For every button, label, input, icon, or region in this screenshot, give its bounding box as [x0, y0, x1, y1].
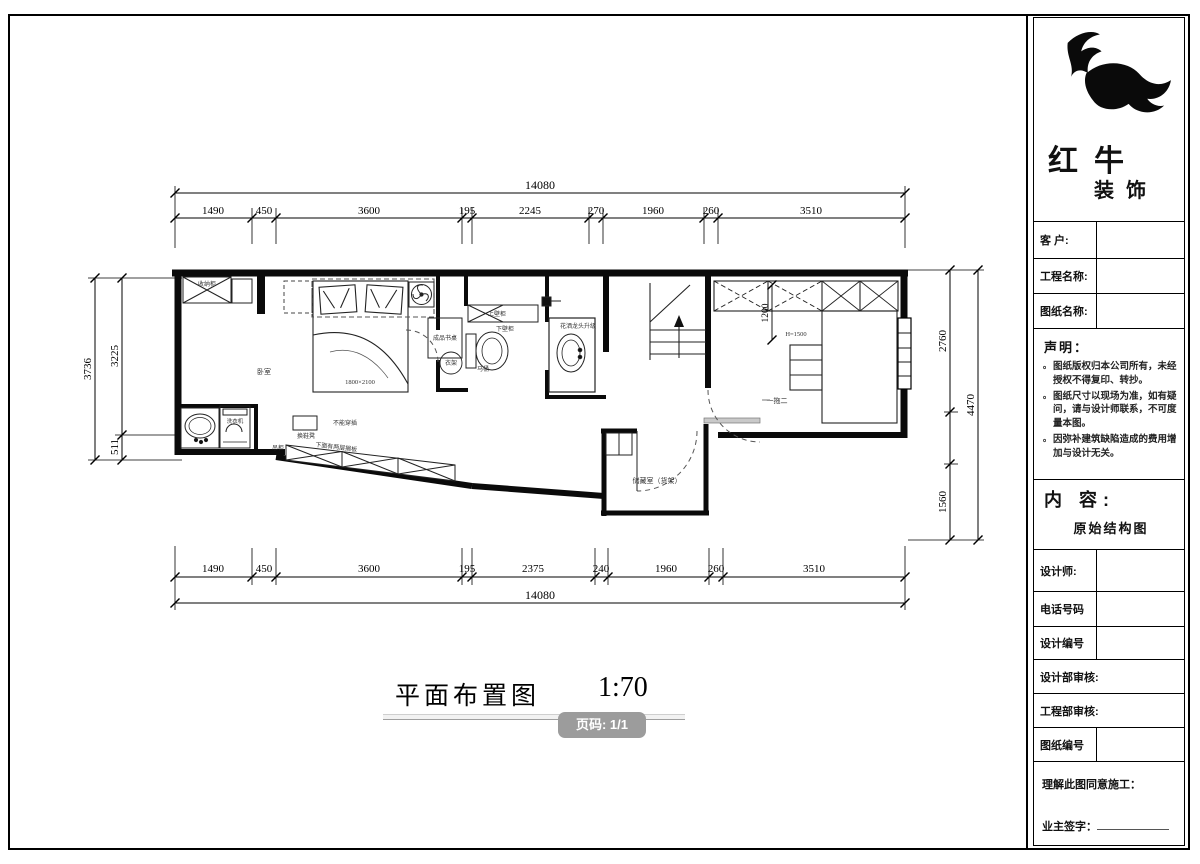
svg-text:511: 511 — [109, 439, 121, 455]
svg-text:260: 260 — [708, 563, 725, 575]
design-dept-review-row: 设计部审核: — [1034, 660, 1184, 694]
band-note-top-label: 不能穿插 — [333, 419, 357, 427]
desk-label: 成品书桌 — [433, 334, 457, 342]
svg-text:3600: 3600 — [358, 563, 381, 575]
cell-divider — [1096, 259, 1097, 293]
top-cabinet-label: 收纳柜 — [198, 280, 216, 288]
svg-text:3510: 3510 — [803, 563, 826, 575]
cell-divider — [1096, 550, 1097, 591]
svg-text:4470: 4470 — [965, 394, 977, 417]
svg-text:3510: 3510 — [800, 205, 823, 217]
bottom-dimensions: 1490 450 3600 195 2375 240 1960 260 3510… — [171, 546, 910, 610]
design-no-label: 设计编号 — [1034, 635, 1092, 651]
closet-depth-dim: 1200 — [761, 281, 777, 345]
door-threshold — [704, 418, 760, 423]
statement-heading: 声明： — [1044, 337, 1179, 356]
hanger-label: 衣架 — [445, 359, 457, 367]
cell-divider — [1096, 294, 1097, 328]
bull-logo-icon — [1042, 26, 1178, 136]
bathroom — [466, 297, 595, 392]
page-number-badge: 页码: 1/1 — [558, 712, 646, 738]
window — [898, 318, 911, 389]
cell-divider — [1096, 728, 1097, 761]
svg-text:1200: 1200 — [761, 303, 771, 322]
shower-note-label: 花洒龙头升级 — [560, 322, 596, 330]
phone-label: 电话号码 — [1034, 601, 1092, 617]
ac-unit-label: 一拖二 — [767, 396, 788, 405]
dim-bottom-total: 14080 — [525, 588, 555, 602]
statement-list: 图纸版权归本公司所有，未经授权不得复印、转抄。 图纸尺寸以现场为准，如有疑问，请… — [1042, 360, 1179, 460]
right-dimensions: 2760 1560 4470 — [908, 266, 984, 545]
drawing-sheet: 14080 1490 450 3600 195 2245 270 1960 26… — [0, 0, 1200, 864]
svg-text:240: 240 — [593, 563, 610, 575]
bathtub — [181, 408, 219, 448]
engineering-dept-review-row: 工程部审核: — [1034, 694, 1184, 728]
washing-machine — [220, 406, 250, 448]
bed-size-label: 1800×2100 — [345, 379, 375, 386]
statement-item: 图纸版权归本公司所有，未经授权不得复印、转抄。 — [1044, 360, 1179, 388]
svg-text:1960: 1960 — [655, 563, 678, 575]
walls — [172, 270, 908, 516]
svg-text:1490: 1490 — [202, 563, 225, 575]
svg-text:3600: 3600 — [358, 205, 381, 217]
svg-text:450: 450 — [256, 563, 273, 575]
svg-text:1960: 1960 — [642, 205, 665, 217]
design-no-row: 设计编号 — [1034, 627, 1184, 660]
brand-logo-box: 红牛 装饰 — [1034, 18, 1184, 222]
drawing-title: 平面布置图 — [395, 676, 540, 712]
engineering-dept-review-label: 工程部审核: — [1034, 703, 1099, 719]
signature-line — [1097, 819, 1169, 830]
svg-text:270: 270 — [588, 205, 605, 217]
stairs — [650, 283, 706, 360]
customer-label: 客 户: — [1034, 232, 1092, 248]
designer-row: 设计师: — [1034, 550, 1184, 592]
panel-divider — [1026, 14, 1028, 850]
svg-text:2245: 2245 — [519, 205, 542, 217]
storage-shelf — [606, 433, 632, 455]
svg-text:2375: 2375 — [522, 563, 545, 575]
svg-text:260: 260 — [703, 205, 720, 217]
content-heading: 内 容: — [1044, 486, 1178, 512]
left-dimensions: 3736 3225 511 — [82, 274, 182, 465]
designer-label: 设计师: — [1034, 563, 1092, 579]
content-box: 内 容: 原始结构图 — [1034, 480, 1184, 550]
dim-top-total: 14080 — [525, 178, 555, 192]
exhaust-fan — [409, 282, 434, 307]
bedroom-label: 卧室 — [257, 367, 271, 376]
customer-row: 客 户: — [1034, 222, 1184, 259]
svg-text:1560: 1560 — [937, 491, 949, 514]
drawing-no-label: 图纸编号 — [1034, 737, 1092, 753]
svg-text:450: 450 — [256, 205, 273, 217]
agreement-text: 理解此图同意施工： — [1042, 776, 1178, 792]
shoe-stool-label: 换鞋凳 — [297, 432, 315, 440]
lower-cabinet-label: 下壁柜 — [496, 325, 514, 333]
drawing-name-row: 图纸名称: — [1034, 294, 1184, 329]
statement-item: 因弥补建筑缺陷造成的费用增加与设计无关。 — [1044, 433, 1179, 461]
svg-text:3225: 3225 — [109, 345, 121, 368]
svg-text:3736: 3736 — [82, 358, 94, 381]
content-value: 原始结构图 — [1044, 518, 1178, 537]
bed — [312, 279, 434, 392]
upper-cabinet-label: 上壁柜 — [488, 310, 506, 318]
washer-label: 洗衣机 — [227, 417, 244, 425]
project-name-row: 工程名称: — [1034, 259, 1184, 294]
svg-text:1490: 1490 — [202, 205, 225, 217]
drawing-name-label: 图纸名称: — [1034, 303, 1092, 319]
svg-text:195: 195 — [459, 563, 476, 575]
drawing-no-row: 图纸编号 — [1034, 728, 1184, 762]
top-left-cabinet — [183, 277, 252, 303]
storage-room-label: 储藏室（货架） — [633, 476, 682, 485]
closet-height-label: H=1500 — [785, 331, 806, 338]
brand-subname: 装饰 — [1094, 174, 1158, 203]
toilet-label: 马桶 — [477, 365, 489, 373]
hall-cabinet-label: 吊柜 — [272, 444, 284, 452]
statement-item: 图纸尺寸以现场为准，如有疑问，请与设计师联系，不可度量本图。 — [1044, 390, 1179, 431]
cell-divider — [1096, 627, 1097, 659]
phone-row: 电话号码 — [1034, 592, 1184, 627]
svg-text:2760: 2760 — [937, 330, 949, 353]
title-block: 红牛 装饰 客 户: 工程名称: 图纸名称: 声明： 图纸版权归本公司所有，未经… — [1033, 17, 1185, 846]
cell-divider — [1096, 592, 1097, 626]
top-dimensions: 14080 1490 450 3600 195 2245 270 1960 26… — [171, 178, 910, 248]
project-name-label: 工程名称: — [1034, 268, 1092, 284]
drawing-scale: 1:70 — [598, 672, 648, 704]
design-dept-review-label: 设计部审核: — [1034, 669, 1099, 685]
right-closets — [714, 281, 898, 423]
cell-divider — [1096, 222, 1097, 258]
signature-box: 理解此图同意施工： 业主签字： — [1034, 762, 1184, 845]
dashed-cabinet — [284, 281, 312, 313]
statement-box: 声明： 图纸版权归本公司所有，未经授权不得复印、转抄。 图纸尺寸以现场为准，如有… — [1034, 329, 1184, 480]
svg-text:195: 195 — [459, 205, 476, 217]
owner-sign-label: 业主签字： — [1042, 821, 1097, 833]
